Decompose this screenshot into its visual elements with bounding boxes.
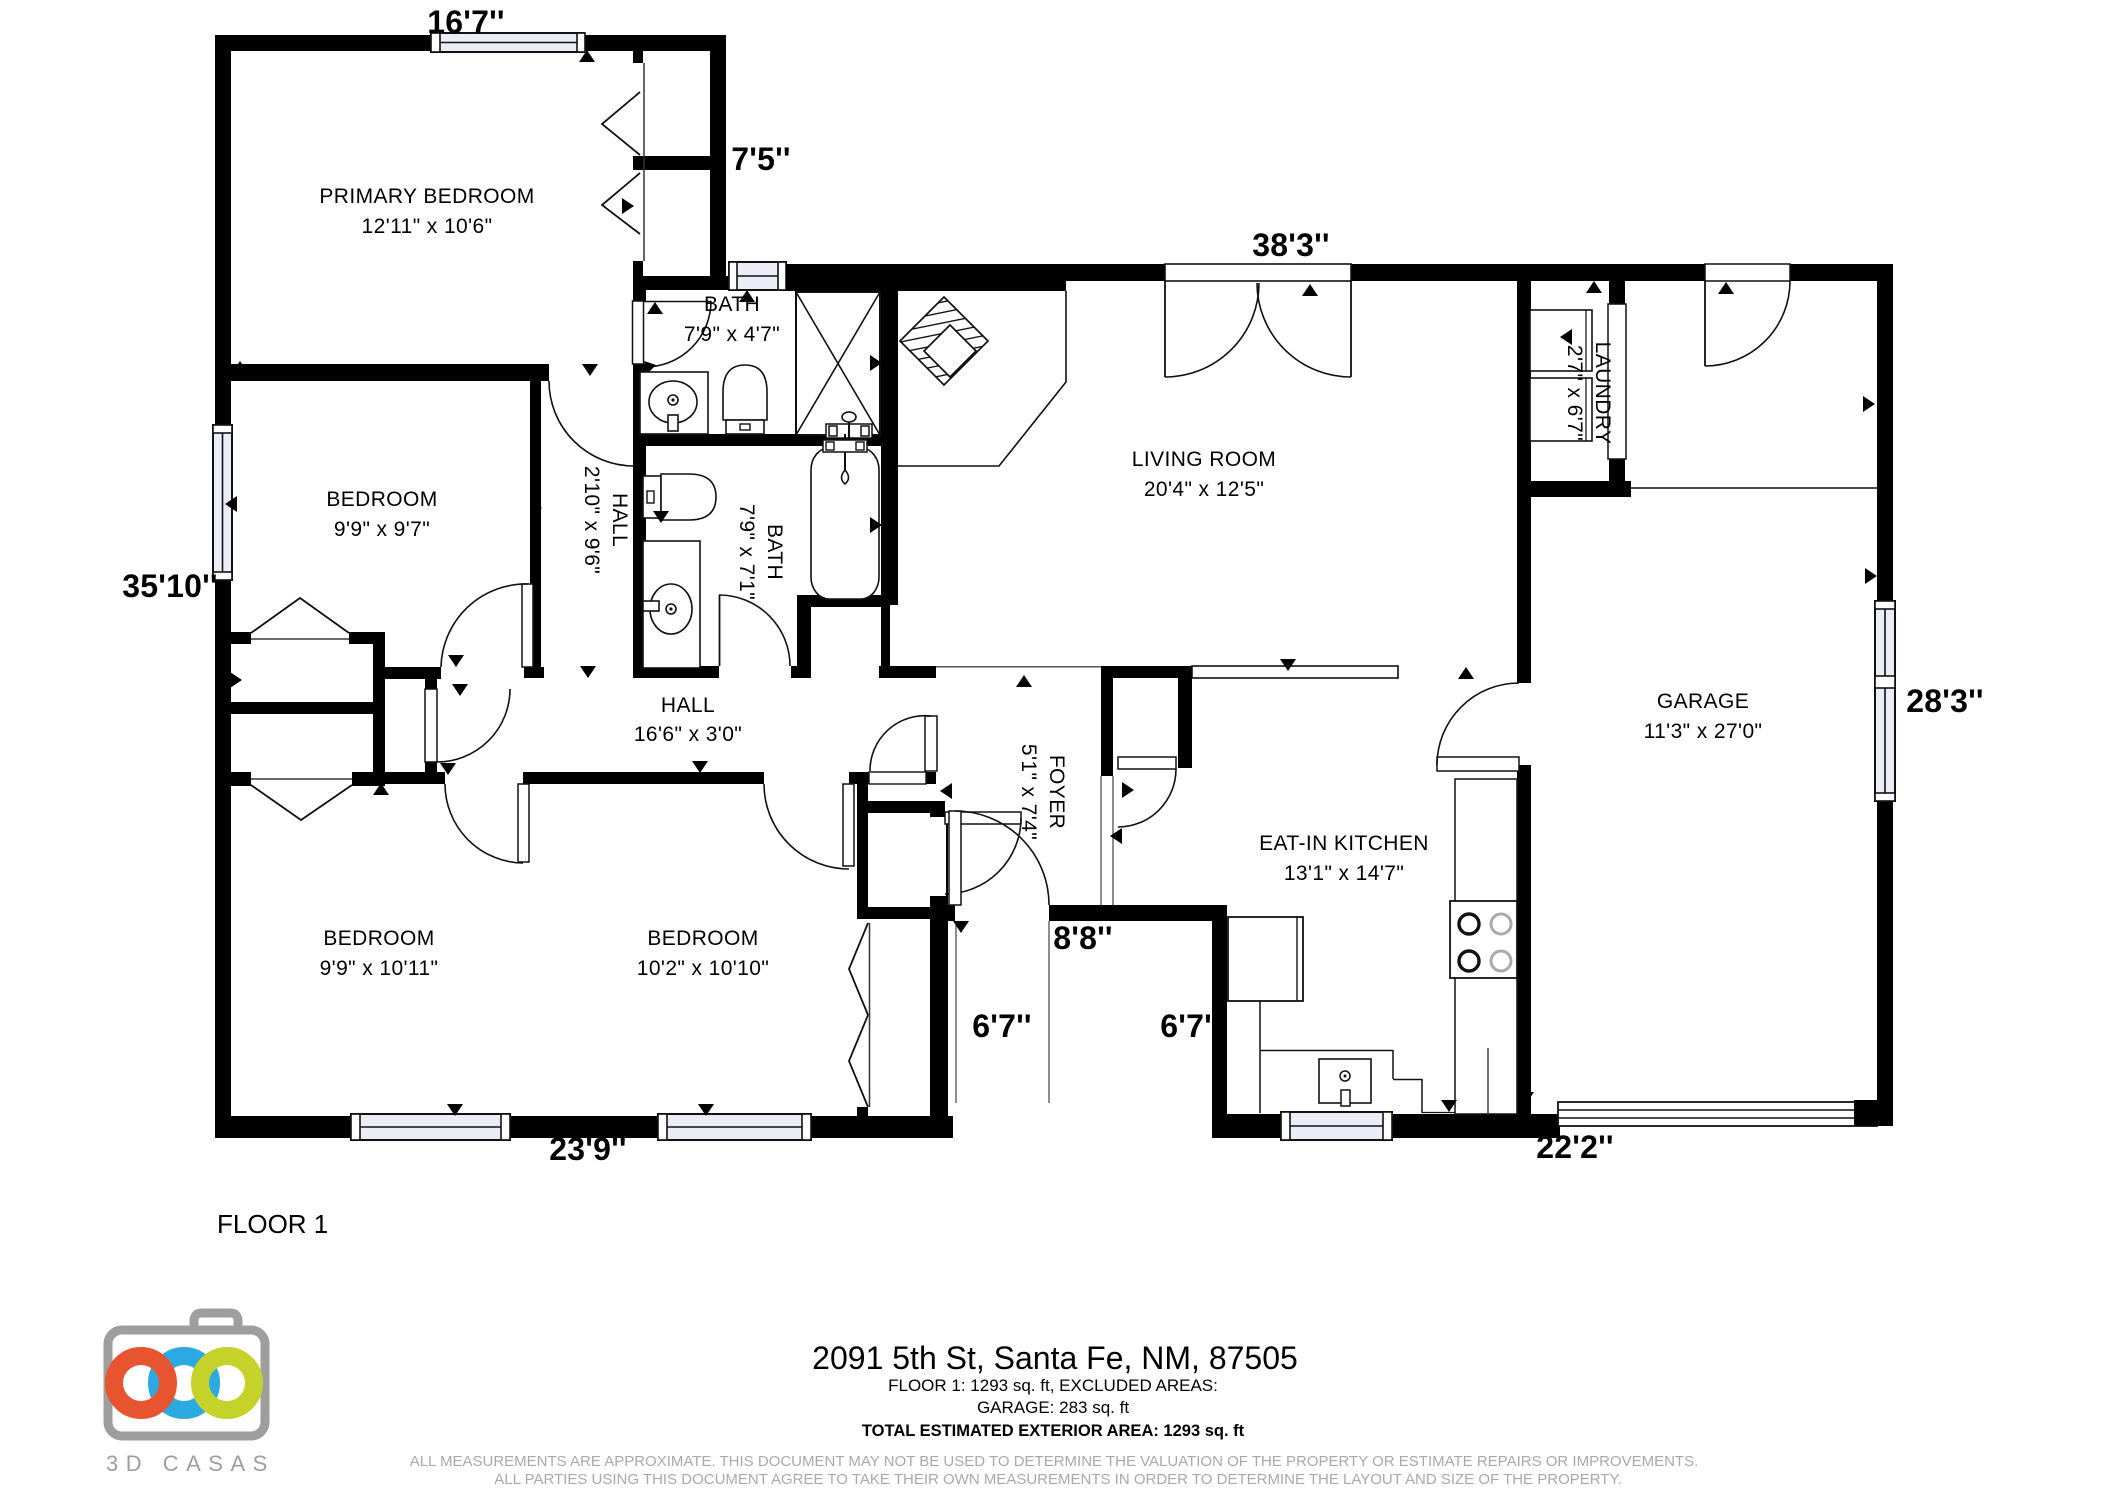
svg-text:20'4" x 12'5": 20'4" x 12'5" (1144, 478, 1264, 501)
svg-text:BEDROOM: BEDROOM (323, 927, 434, 950)
svg-text:BATH: BATH (763, 524, 786, 580)
svg-text:TOTAL ESTIMATED EXTERIOR AREA:: TOTAL ESTIMATED EXTERIOR AREA: 1293 sq. … (862, 1422, 1245, 1440)
svg-text:ALL PARTIES USING THIS DOCUMEN: ALL PARTIES USING THIS DOCUMENT AGREE TO… (494, 1471, 1621, 1488)
svg-text:10'2" x 10'10": 10'2" x 10'10" (637, 957, 769, 980)
svg-text:35'10'': 35'10'' (122, 568, 217, 604)
svg-text:HALL: HALL (661, 694, 715, 717)
svg-text:BEDROOM: BEDROOM (326, 488, 437, 511)
svg-text:2'7" x 6'7": 2'7" x 6'7" (1563, 345, 1586, 441)
svg-text:LAUNDRY: LAUNDRY (1591, 342, 1614, 445)
svg-text:PRIMARY BEDROOM: PRIMARY BEDROOM (319, 185, 534, 208)
svg-text:22'2'': 22'2'' (1536, 1129, 1613, 1165)
svg-text:5'1" x 7'4": 5'1" x 7'4" (1017, 744, 1040, 840)
svg-text:ALL MEASUREMENTS ARE APPROXIMA: ALL MEASUREMENTS ARE APPROXIMATE. THIS D… (410, 1453, 1699, 1470)
svg-text:2'10" x 9'6": 2'10" x 9'6" (580, 466, 603, 574)
svg-text:FOYER: FOYER (1045, 755, 1068, 829)
svg-text:BATH: BATH (704, 293, 760, 316)
svg-text:3D CASAS: 3D CASAS (106, 1451, 275, 1476)
svg-text:2091 5th St, Santa Fe, NM, 875: 2091 5th St, Santa Fe, NM, 87505 (812, 1340, 1298, 1376)
svg-text:HALL: HALL (608, 493, 631, 547)
svg-text:LIVING ROOM: LIVING ROOM (1132, 448, 1276, 471)
svg-text:9'9" x 9'7": 9'9" x 9'7" (334, 518, 430, 541)
svg-text:FLOOR 1: 1293 sq. ft, EXCLUDED: FLOOR 1: 1293 sq. ft, EXCLUDED AREAS: (888, 1376, 1218, 1395)
svg-text:13'1" x 14'7": 13'1" x 14'7" (1284, 862, 1404, 885)
svg-text:9'9" x 10'11": 9'9" x 10'11" (320, 957, 439, 980)
svg-text:11'3" x 27'0": 11'3" x 27'0" (1644, 720, 1763, 743)
svg-text:GARAGE: 283 sq. ft: GARAGE: 283 sq. ft (977, 1398, 1129, 1417)
svg-text:16'7'': 16'7'' (427, 4, 504, 40)
svg-text:6'7'': 6'7'' (1160, 1008, 1219, 1044)
svg-text:EAT-IN KITCHEN: EAT-IN KITCHEN (1259, 832, 1429, 855)
svg-text:12'11" x 10'6": 12'11" x 10'6" (362, 215, 493, 238)
svg-text:GARAGE: GARAGE (1657, 690, 1749, 713)
svg-text:7'9" x 4'7": 7'9" x 4'7" (684, 323, 780, 346)
svg-text:6'7'': 6'7'' (972, 1008, 1031, 1044)
svg-text:FLOOR 1: FLOOR 1 (217, 1209, 328, 1239)
svg-text:38'3'': 38'3'' (1252, 227, 1329, 263)
svg-text:8'8'': 8'8'' (1053, 920, 1112, 956)
svg-text:BEDROOM: BEDROOM (647, 927, 758, 950)
svg-text:7'5'': 7'5'' (731, 141, 790, 177)
svg-text:28'3'': 28'3'' (1906, 683, 1983, 719)
svg-text:7'9" x 7'1": 7'9" x 7'1" (735, 504, 758, 600)
svg-text:23'9'': 23'9'' (549, 1131, 626, 1167)
svg-text:16'6" x 3'0": 16'6" x 3'0" (634, 723, 742, 746)
